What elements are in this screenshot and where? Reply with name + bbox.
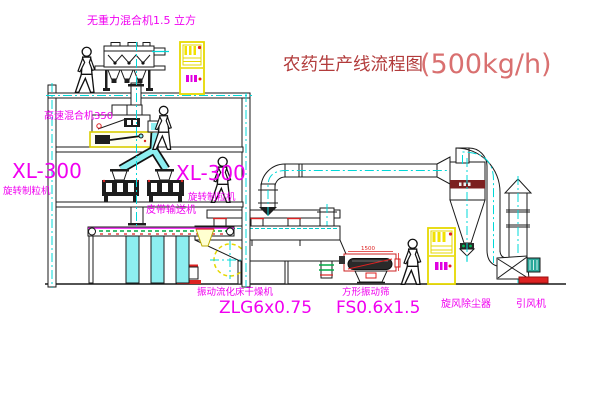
granulator-left bbox=[102, 169, 139, 202]
hopper-neck bbox=[138, 79, 143, 83]
block-slot bbox=[127, 120, 131, 125]
duct-elbow-inner bbox=[275, 177, 285, 187]
label-belt-conveyor: 皮带输送机 bbox=[146, 203, 196, 216]
foot-plate bbox=[103, 88, 110, 91]
granulator-hopper bbox=[112, 171, 127, 180]
indicator-dot bbox=[449, 265, 452, 268]
cabinet-stripe bbox=[438, 232, 441, 242]
body-slot bbox=[117, 183, 123, 192]
mixer-leg bbox=[105, 70, 108, 88]
screen-outlet bbox=[395, 259, 400, 267]
red-dot bbox=[144, 140, 146, 142]
conveyor-leg bbox=[176, 236, 189, 283]
body-slot bbox=[106, 183, 112, 192]
label-dryer-model: ZLG6x0.75 bbox=[219, 298, 312, 318]
cabinet-text-mark bbox=[435, 262, 439, 270]
lid-bump bbox=[143, 43, 150, 47]
dryer-bottom-pan bbox=[195, 240, 349, 261]
control-cabinet-top bbox=[180, 42, 204, 94]
diagram-canvas: 无重力混合机1.5 立方 农药生产线流程图 (500kg/h) 高速混合机350… bbox=[0, 0, 600, 403]
person-figure bbox=[401, 239, 420, 284]
label-screen-name: 方形振动筛 bbox=[342, 286, 390, 298]
drawing-title-capacity: (500kg/h) bbox=[420, 49, 552, 80]
induced-draft-fan bbox=[497, 256, 548, 283]
band-mark bbox=[464, 183, 467, 187]
granulator-leg bbox=[178, 196, 182, 202]
cabinet-text-mark bbox=[186, 75, 189, 82]
fan-red-base bbox=[519, 277, 548, 283]
label-granulator-name-right: 旋转制粒机 bbox=[188, 191, 236, 203]
screen-inlet bbox=[339, 256, 345, 264]
indicator-dot bbox=[199, 78, 202, 81]
cabinet-text-mark bbox=[194, 75, 197, 82]
flange-green-dot bbox=[462, 245, 465, 248]
mixer-hopper bbox=[134, 70, 146, 79]
indicator-dot bbox=[198, 46, 201, 49]
dryer-ports bbox=[213, 218, 301, 226]
person-figure bbox=[153, 106, 171, 149]
cabinet-text-mark bbox=[440, 262, 443, 270]
cabinet-stripe bbox=[189, 46, 192, 55]
paddle-hub bbox=[141, 61, 144, 64]
label-screen-dimension: 1500 bbox=[361, 246, 375, 252]
foot-plate bbox=[146, 88, 153, 91]
label-gravity-free-mixer: 无重力混合机1.5 立方 bbox=[87, 13, 196, 27]
label-granulator-model-left: XL-300 bbox=[12, 159, 82, 183]
body-slot bbox=[151, 183, 157, 192]
mixer-hopper bbox=[108, 70, 120, 79]
conveyor-pulley bbox=[89, 228, 96, 235]
red-mark bbox=[103, 180, 105, 182]
red-mark bbox=[148, 180, 150, 182]
conveyor-leg bbox=[126, 236, 139, 283]
mixer-block bbox=[124, 118, 140, 127]
label-screen-model: FS0.6x1.5 bbox=[336, 298, 420, 318]
band-mark bbox=[468, 183, 471, 187]
conveyor-leg-thin bbox=[89, 236, 93, 283]
cabinet-text-mark bbox=[444, 262, 448, 270]
cabinet-text-mark bbox=[191, 75, 193, 82]
lid-bump bbox=[128, 43, 137, 47]
conveyor-pulley bbox=[227, 228, 234, 235]
paddle-hub bbox=[127, 61, 130, 64]
indicator-dot bbox=[449, 232, 452, 235]
paddle-hub bbox=[113, 61, 116, 64]
mixer-hopper bbox=[121, 70, 133, 79]
control-cabinet-right bbox=[428, 228, 455, 284]
cabinet-stripe bbox=[185, 46, 188, 55]
granulator-hopper bbox=[157, 171, 172, 180]
cabinet-stripe bbox=[194, 46, 197, 55]
flange-green-dot bbox=[469, 245, 472, 248]
body-slot bbox=[162, 183, 168, 192]
granulator-leg bbox=[104, 196, 108, 202]
label-high-speed-mixer: 高速混合机350 bbox=[44, 109, 113, 122]
label-granulator-name-left: 旋转制粒机 bbox=[3, 185, 51, 197]
label-cyclone: 旋风除尘器 bbox=[441, 297, 491, 310]
band-mark bbox=[459, 183, 462, 187]
shaft-end bbox=[139, 134, 143, 138]
label-dryer-name: 振动流化床干燥机 bbox=[197, 286, 274, 298]
downcomer-elbow bbox=[500, 250, 507, 258]
label-granulator-model-right: XL-300 bbox=[176, 161, 246, 185]
person-figure bbox=[75, 47, 94, 92]
dryer-leg bbox=[285, 261, 288, 284]
label-fan: 引风机 bbox=[516, 297, 546, 310]
process-flow-diagram: 无重力混合机1.5 立方 农药生产线流程图 (500kg/h) 高速混合机350… bbox=[0, 0, 600, 403]
cabinet-stripe bbox=[433, 232, 436, 242]
drive-motor bbox=[95, 135, 110, 144]
body-slot bbox=[128, 183, 134, 192]
hopper-neck bbox=[125, 79, 130, 83]
vibrating-screen bbox=[339, 252, 400, 283]
cyclone-separator bbox=[450, 148, 507, 267]
granulator-leg bbox=[149, 196, 153, 202]
mixer-leg bbox=[148, 70, 151, 88]
cabinet-stripe bbox=[443, 232, 446, 242]
drawing-title: 农药生产线流程图 bbox=[283, 55, 423, 75]
conveyor-leg bbox=[151, 236, 164, 283]
lid-bump bbox=[111, 43, 120, 47]
hopper-neck bbox=[112, 79, 117, 83]
